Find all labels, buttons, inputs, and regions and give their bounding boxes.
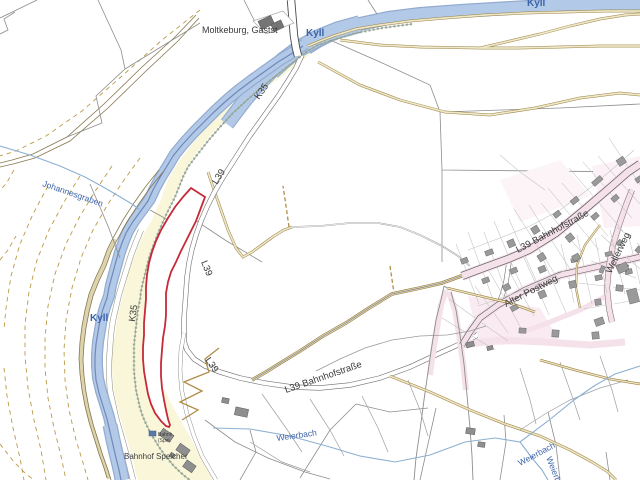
svg-text:Moltkeburg, Gastst: Moltkeburg, Gastst [202, 25, 278, 35]
svg-text:Kyll: Kyll [306, 28, 325, 39]
svg-text:Bahnhof Speicher: Bahnhof Speicher [124, 452, 188, 461]
svg-text:Kyll: Kyll [90, 313, 109, 324]
svg-text:Kyll: Kyll [527, 0, 546, 9]
svg-text:(Spei.: (Spei. [158, 438, 171, 444]
svg-text:K35: K35 [127, 304, 140, 322]
